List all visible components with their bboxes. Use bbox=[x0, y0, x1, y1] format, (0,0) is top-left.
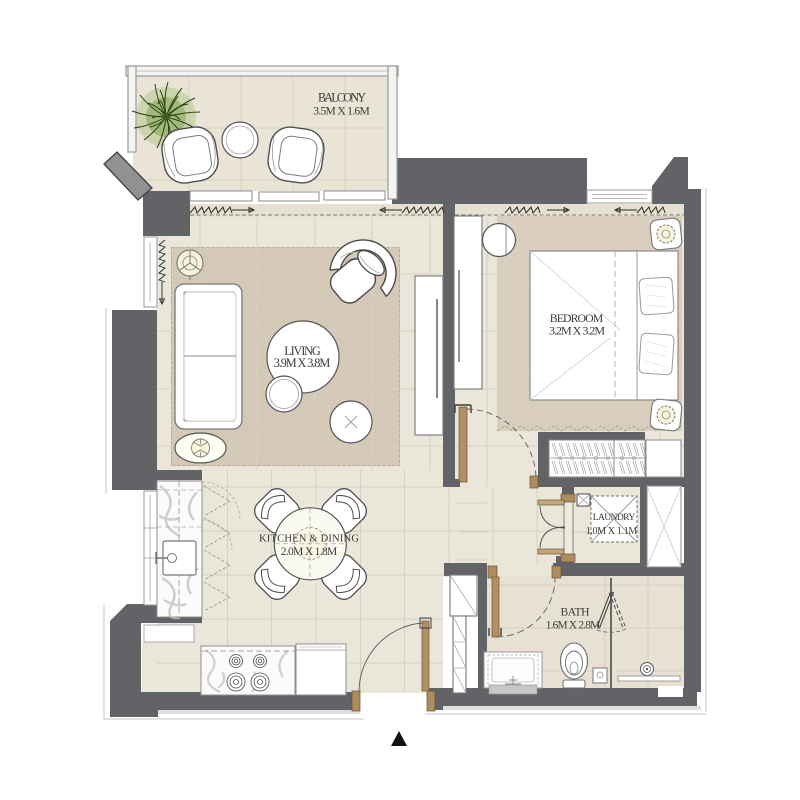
svg-text:3.5M X 1.6M: 3.5M X 1.6M bbox=[313, 105, 370, 118]
svg-text:3.2M X 3.2M: 3.2M X 3.2M bbox=[549, 324, 605, 338]
svg-text:LAUNDRY: LAUNDRY bbox=[593, 512, 636, 523]
svg-text:BALCONY: BALCONY bbox=[318, 91, 366, 105]
svg-text:2.0M X 1.8M: 2.0M X 1.8M bbox=[281, 546, 338, 558]
svg-text:KITCHEN & DINING: KITCHEN & DINING bbox=[259, 534, 359, 545]
svg-text:1.6M X 2.8M: 1.6M X 2.8M bbox=[546, 620, 601, 632]
svg-text:3.9M X 3.8M: 3.9M X 3.8M bbox=[274, 356, 331, 370]
svg-text:BATH: BATH bbox=[561, 606, 591, 619]
svg-text:1.0M X 1.1M: 1.0M X 1.1M bbox=[586, 526, 638, 537]
